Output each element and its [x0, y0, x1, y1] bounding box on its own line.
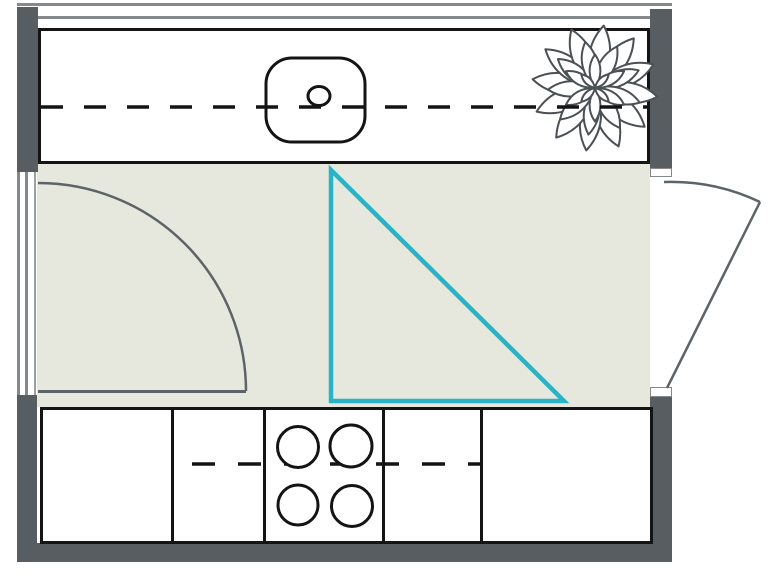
top-window-inner-line — [38, 16, 650, 19]
wall-top-left-corner — [17, 7, 38, 172]
right-door — [664, 182, 760, 388]
wall-left-lower — [17, 395, 37, 562]
top-counter — [38, 28, 650, 164]
kitchen-floor — [37, 164, 650, 407]
right-door-jamb-bottom — [650, 387, 672, 397]
top-window-outer-line — [17, 3, 672, 6]
left-window-outer-line — [17, 172, 20, 395]
right-door-jamb-top — [650, 168, 672, 177]
cabinet-divider-3 — [382, 410, 385, 541]
left-window-middle-line — [25, 172, 28, 395]
floor-plan-canvas — [0, 0, 768, 576]
bottom-counter — [40, 407, 653, 544]
right-door-swing-arc — [664, 182, 760, 202]
wall-bottom — [17, 543, 672, 562]
wall-right-lower — [650, 397, 672, 543]
right-door-leaf — [667, 202, 760, 388]
cabinet-divider-2 — [263, 410, 266, 541]
cabinet-divider-4 — [480, 410, 483, 541]
wall-right-upper — [650, 9, 672, 168]
cabinet-divider-1 — [171, 410, 174, 541]
left-window-inner-line — [34, 172, 36, 395]
